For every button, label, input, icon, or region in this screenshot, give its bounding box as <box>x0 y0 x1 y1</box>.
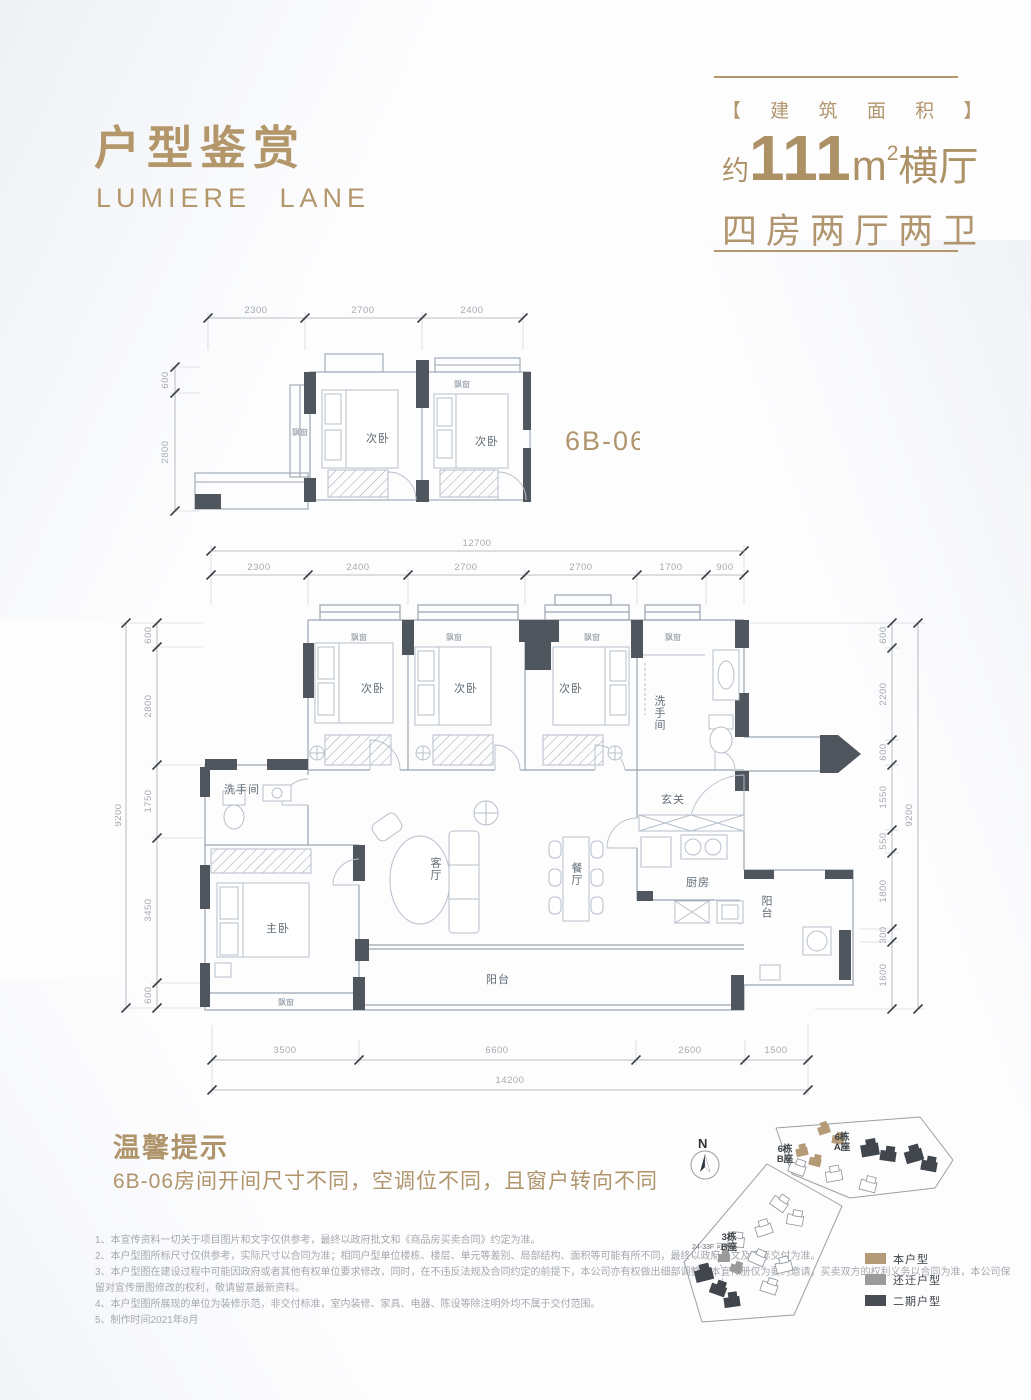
site-buildings-other <box>728 1157 879 1295</box>
sale-floors-note: 24-33F 可售 <box>692 1242 730 1251</box>
bedroom-label: 次卧 <box>475 434 499 448</box>
svg-text:1800: 1800 <box>878 879 889 902</box>
area-unit: m <box>852 142 887 190</box>
bathroom-label: 洗手间 <box>224 782 260 796</box>
floorplan-poster-page: 户型鉴赏 LUMIERE LANE 【 建 筑 面 积 】 约111m2横厅 四… <box>0 0 1031 1400</box>
legend-swatch-phase-two <box>865 1295 886 1306</box>
main-plan-dimensions-right: 600 2200 600 1550 550 1800 300 1600 9200 <box>750 619 925 1014</box>
area-type: 横厅 <box>898 134 978 192</box>
tips-content: 6B-06房间开间尺寸不同，空调位不同，且窗户转向不同 <box>113 1165 658 1195</box>
area-tag: 【 建 筑 面 积 】 <box>722 96 958 123</box>
svg-text:3500: 3500 <box>273 1045 296 1056</box>
svg-text:600: 600 <box>878 743 889 760</box>
balcony-label: 阳台 <box>760 895 773 919</box>
svg-text:600: 600 <box>143 626 154 643</box>
legend-label: 还迁户型 <box>893 1273 941 1287</box>
main-plan-dimensions-left: 600 2800 1750 3450 600 9200 <box>115 619 203 1013</box>
legend-swatch-relocation <box>865 1274 886 1285</box>
svg-text:600: 600 <box>160 371 171 388</box>
svg-text:2700: 2700 <box>454 562 477 573</box>
svg-text:3450: 3450 <box>143 898 154 921</box>
tips-title: 温馨提示 <box>113 1126 229 1165</box>
upper-plan-dimensions-top: 2300 2700 2400 <box>204 305 528 350</box>
svg-text:2700: 2700 <box>351 305 374 316</box>
page-title: 户型鉴赏 <box>94 112 306 178</box>
svg-text:1500: 1500 <box>764 1045 787 1056</box>
legend-label: 本户型 <box>893 1252 929 1266</box>
dining-room-label: 餐厅 <box>570 861 583 886</box>
svg-text:550: 550 <box>878 832 889 849</box>
svg-text:300: 300 <box>878 926 889 943</box>
legend-label: 二期户型 <box>893 1294 941 1308</box>
kitchen-label: 厨房 <box>686 876 710 889</box>
svg-text:2400: 2400 <box>346 562 369 573</box>
main-floorplan: 12700 2300 2400 2700 2700 1700 900 <box>115 535 960 1105</box>
svg-text:N: N <box>698 1136 707 1151</box>
main-plan-doors <box>282 740 744 925</box>
bay-window-label: 飘窗 <box>278 997 294 1007</box>
svg-text:2400: 2400 <box>460 305 483 316</box>
entrance-arrow <box>820 735 861 773</box>
compass-icon: N <box>691 1136 719 1179</box>
svg-text:2600: 2600 <box>678 1045 701 1056</box>
site-buildings-relocation <box>718 1250 744 1275</box>
svg-text:2800: 2800 <box>143 694 154 717</box>
svg-text:2300: 2300 <box>247 562 270 573</box>
area-value: 约111m2横厅 <box>722 126 978 192</box>
area-about: 约 <box>722 149 749 188</box>
bedroom-label: 次卧 <box>366 431 390 445</box>
area-number: 111 <box>749 126 852 190</box>
upper-plan-dimensions-left: 600 2800 <box>160 363 200 516</box>
svg-text:2800: 2800 <box>160 440 171 463</box>
living-room-label: 客厅 <box>429 856 442 881</box>
rooms-description: 四房两厅两卫 <box>722 203 986 254</box>
unit-code: 6B-06 <box>565 426 640 456</box>
bedroom-label: 次卧 <box>559 681 583 695</box>
bay-window-label: 飘窗 <box>351 632 367 642</box>
bay-window-label: 飘窗 <box>584 632 600 642</box>
area-superscript: 2 <box>887 142 899 166</box>
svg-text:9200: 9200 <box>115 803 124 826</box>
main-plan-dimension-width-total: 12700 <box>207 538 749 556</box>
bathroom-label: 洗手间 <box>653 695 666 731</box>
svg-text:900: 900 <box>716 562 733 573</box>
svg-text:2200: 2200 <box>878 682 889 705</box>
svg-text:1750: 1750 <box>143 789 154 812</box>
bedroom-label: 次卧 <box>454 681 478 695</box>
bedroom-label: 次卧 <box>361 681 385 695</box>
svg-text:1700: 1700 <box>659 562 682 573</box>
svg-text:6600: 6600 <box>485 1045 508 1056</box>
bay-window-label: 飘窗 <box>292 427 308 437</box>
svg-text:9200: 9200 <box>904 803 915 826</box>
master-bedroom-label: 主卧 <box>266 922 290 935</box>
page-subtitle: LUMIERE LANE <box>96 183 370 214</box>
svg-text:14200: 14200 <box>496 1075 525 1086</box>
bay-window-label: 飘窗 <box>446 632 462 642</box>
building-label: 6栋B座 <box>777 1143 794 1165</box>
building-label: 6栋A座 <box>834 1131 851 1153</box>
svg-text:1550: 1550 <box>878 785 889 808</box>
legend-swatch-this-unit <box>865 1253 886 1264</box>
svg-text:12700: 12700 <box>463 538 492 549</box>
balcony-label: 阳台 <box>486 972 510 986</box>
divider <box>714 76 958 78</box>
foyer-label: 玄关 <box>661 792 685 806</box>
main-plan-dimensions-top: 2300 2400 2700 2700 1700 900 <box>207 545 749 605</box>
svg-text:600: 600 <box>878 626 889 643</box>
main-plan-dimensions-bottom: 3500 6600 2600 1500 14200 <box>208 1025 813 1095</box>
upper-floorplan: 2300 2700 2400 600 2800 <box>140 290 640 535</box>
divider <box>714 250 958 252</box>
site-legend: 本户型 还迁户型 二期户型 <box>865 1252 941 1308</box>
svg-text:600: 600 <box>143 986 154 1003</box>
svg-text:1600: 1600 <box>878 963 889 986</box>
site-map: N <box>672 1112 972 1352</box>
svg-text:2700: 2700 <box>569 562 592 573</box>
svg-text:2300: 2300 <box>244 305 267 316</box>
bay-window-label: 飘窗 <box>665 632 681 642</box>
bay-window-label: 飘窗 <box>454 379 470 389</box>
